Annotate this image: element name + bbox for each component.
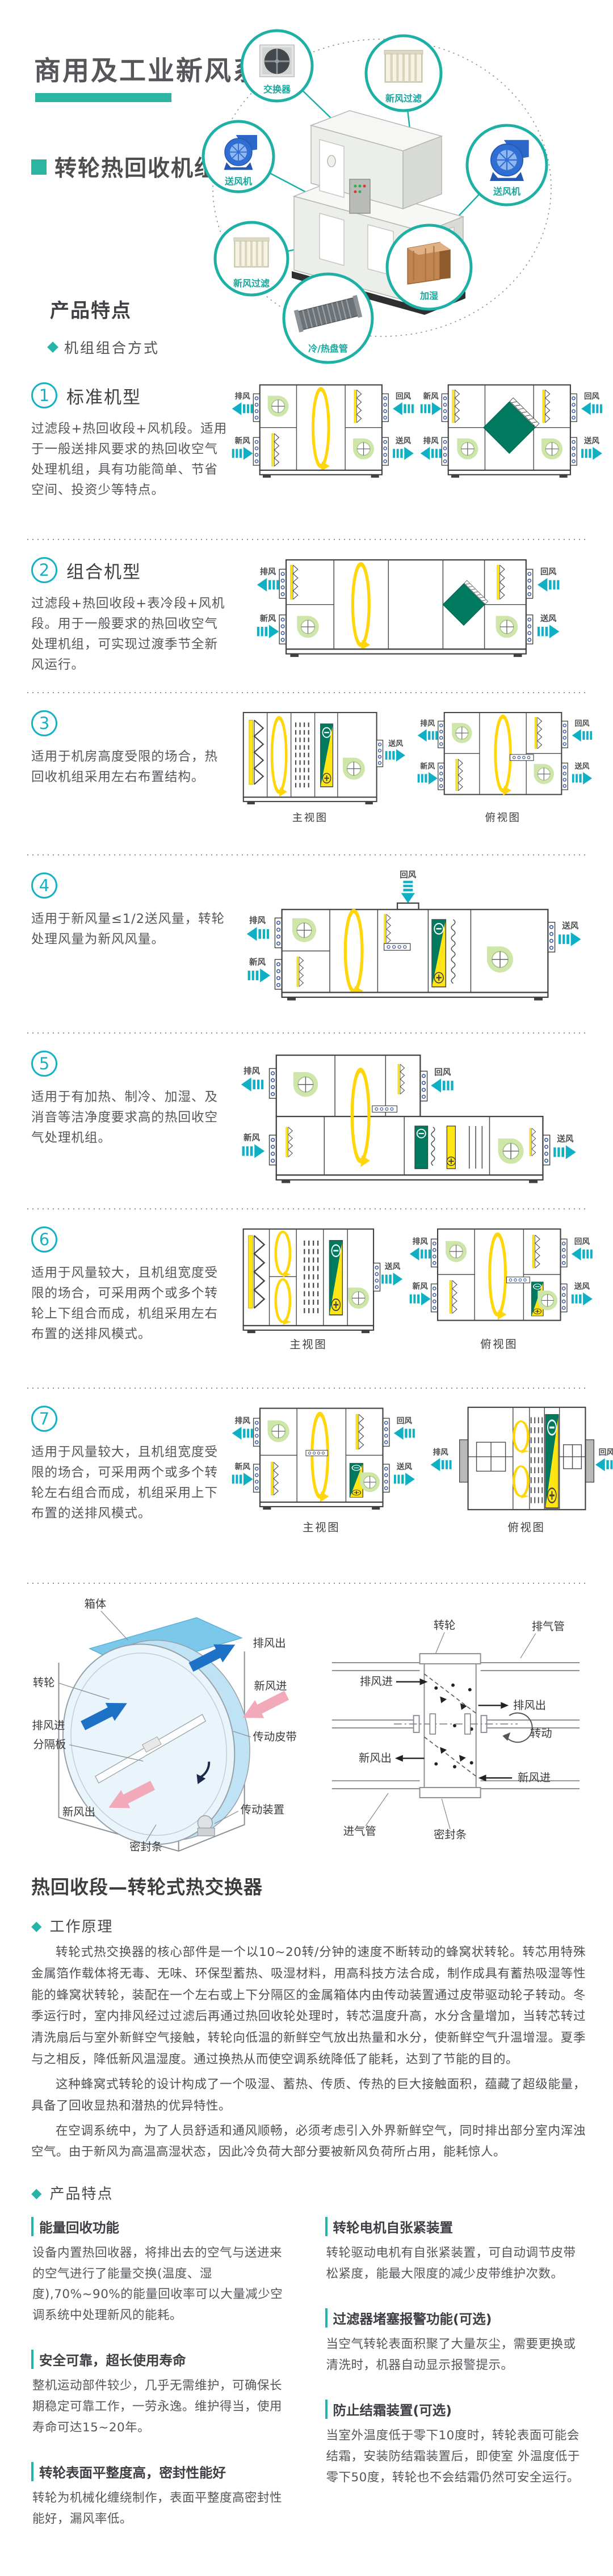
- svg-text:送风机: 送风机: [224, 176, 252, 187]
- bottom-features-section: ◆ 产品特点 能量回收功能 设备内置热回收器，将排出去的空气与送进来的空气进行了…: [0, 2166, 613, 2576]
- svg-text:新风: 新风: [412, 1281, 428, 1291]
- diamond-bullet-icon: [47, 342, 58, 353]
- schematic-top-view-twin-wheels: 排风 回风 俯视图: [421, 1402, 613, 1540]
- feature-title: 安全可靠，超长使用寿命: [31, 2350, 292, 2369]
- svg-text:排风: 排风: [259, 567, 276, 577]
- product-subtitle: 转轮热回收机组: [54, 151, 217, 183]
- callout-humidifier: 加湿: [387, 225, 471, 309]
- svg-text:排风: 排风: [423, 436, 439, 446]
- svg-text:新风: 新风: [235, 436, 251, 446]
- callout-exchanger: 交换器: [242, 31, 312, 101]
- schematic-standard-unit: 排风 新风 回风 送风: [231, 379, 417, 493]
- svg-text:新风: 新风: [259, 614, 276, 623]
- feature-title: 转轮表面平整度高，密封性能好: [31, 2462, 292, 2481]
- svg-text:新风过滤: 新风过滤: [385, 93, 422, 104]
- svg-text:新风: 新风: [235, 1462, 251, 1472]
- exploded-unit-diagram: 交换器 新风过滤 送风机 加湿 冷/热盘管 新风过滤: [198, 9, 610, 378]
- section-number: 5: [31, 1051, 57, 1077]
- svg-text:排风: 排风: [243, 1066, 261, 1076]
- svg-text:加湿: 加湿: [419, 290, 438, 301]
- schematic-front-view: 排风 新风 回风 送风 主视图: [231, 1402, 418, 1540]
- feature-section-3: 3 适用于机房高度受限的场合，热回收机组采用左右布置结构。 送风 主视图: [0, 698, 613, 850]
- section-description: 适用于新风量≤1/2送风量，转轮处理风量为新风风量。: [31, 909, 231, 950]
- svg-text:排风: 排风: [249, 916, 266, 926]
- bottom-features-title: 产品特点: [49, 2182, 113, 2203]
- features-bullet-label: 机组组合方式: [64, 337, 159, 357]
- feature-item: 转轮表面平整度高，密封性能好 转轮为机械化缠绕制作，表面平整度高密封性能好，漏风…: [31, 2462, 292, 2529]
- svg-text:新风进: 新风进: [254, 1680, 287, 1693]
- heat-recovery-section: 热回收段—转轮式热交换器 ◆ 工作原理 转轮式热交换器的核心部件是一个以10~2…: [0, 1860, 613, 2163]
- svg-text:排风出: 排风出: [253, 1637, 286, 1650]
- svg-text:回风: 回风: [540, 568, 556, 577]
- dotted-divider: [27, 1583, 586, 1584]
- callout-fresh-air-filter-top: 新风过滤: [366, 36, 441, 111]
- svg-text:新风过滤: 新风过滤: [233, 278, 270, 289]
- svg-text:进气管: 进气管: [343, 1824, 376, 1837]
- schematic-front-view-stacked-wheels: 送风 主视图: [233, 1223, 404, 1356]
- schematic-top-view: 排风 新风 回风 送风 俯视图: [417, 707, 595, 828]
- svg-text:送风: 送风: [574, 762, 589, 771]
- feature-section-6: 6 适用于风量较大，且机组宽度受限的场合，可采用两个或多个转轮上下组合而成，机组…: [0, 1214, 613, 1383]
- feature-title: 转轮电机自张紧装置: [325, 2217, 586, 2236]
- diamond-bullet-icon: ◆: [31, 1918, 43, 1934]
- svg-text:排风进: 排风进: [32, 1719, 65, 1732]
- svg-text:新风进: 新风进: [518, 1771, 551, 1784]
- schematic-combined-unit: 排风 新风 回风 送风: [256, 554, 574, 673]
- svg-text:送风: 送风: [395, 436, 412, 446]
- svg-text:回风: 回风: [574, 720, 589, 728]
- svg-text:分隔板: 分隔板: [33, 1738, 66, 1751]
- svg-text:排风: 排风: [235, 1416, 251, 1426]
- section-number: 4: [31, 872, 57, 899]
- svg-text:主视图: 主视图: [290, 1338, 328, 1351]
- feature-title: 过滤器堵塞报警功能(可选): [325, 2308, 586, 2328]
- svg-text:密封条: 密封条: [129, 1840, 162, 1853]
- schematic-front-view: 送风 主视图: [234, 707, 411, 828]
- svg-text:送风: 送风: [384, 1262, 401, 1271]
- svg-text:密封条: 密封条: [434, 1828, 467, 1841]
- svg-text:排风进: 排风进: [360, 1675, 393, 1688]
- section-description: 适用于风量较大，且机组宽度受限的场合，可采用两个或多个转轮上下组合而成，机组采用…: [31, 1263, 231, 1344]
- subtitle-bullet-square: [31, 159, 47, 175]
- svg-text:排风: 排风: [433, 1447, 449, 1457]
- svg-text:排气管: 排气管: [532, 1620, 565, 1633]
- dotted-divider: [27, 854, 586, 855]
- feature-text: 当空气转轮表面积聚了大量灰尘，需要更换或清洗时，机器自动显示报警提示。: [326, 2334, 586, 2376]
- principle-paragraph: 这种蜂窝式转轮的设计构成了一个吸湿、蓄热、传质、传热的巨大接触面积，蕴藏了超级能…: [31, 2074, 586, 2117]
- feature-item: 过滤器堵塞报警功能(可选) 当空气转轮表面积聚了大量灰尘，需要更换或清洗时，机器…: [325, 2308, 586, 2376]
- hero: 商用及工业新风系统 转轮热回收机组 产品特点 机组组合方式: [0, 0, 613, 370]
- svg-text:送风: 送风: [539, 614, 556, 623]
- recovery-heading: 热回收段—转轮式热交换器: [31, 1872, 586, 1899]
- section-description: 适用于有加热、制冷、加湿、及消音等洁净度要求高的热回收空气处理机组。: [31, 1087, 231, 1148]
- feature-text: 转轮为机械化缠绕制作，表面平整度高密封性能好，漏风率低。: [32, 2488, 292, 2529]
- wheel-cross-section-diagram: 转轮 排气管 排风进 排风出 转动 新风出 新风进 密封条 进气管: [309, 1595, 603, 1860]
- svg-text:俯视图: 俯视图: [480, 1338, 518, 1351]
- section-description: 适用于风量较大，且机组宽度受限的场合，可采用两个或多个转轮左右组合而成，机组采用…: [31, 1442, 231, 1524]
- title-underline-bar: [35, 93, 171, 102]
- svg-text:传动皮带: 传动皮带: [253, 1730, 297, 1743]
- svg-text:新风出: 新风出: [359, 1751, 392, 1764]
- callout-supply-fan-right: 送风机: [467, 125, 547, 205]
- callout-fresh-air-filter-bottom: 新风过滤: [215, 222, 288, 295]
- svg-text:交换器: 交换器: [263, 84, 291, 95]
- feature-title: 防止结霜装置(可选): [325, 2400, 586, 2419]
- dotted-divider: [27, 1388, 586, 1389]
- principle-paragraph: 转轮式热交换器的核心部件是一个以10~20转/分钟的速度不断转动的蜂窝状转轮。转…: [31, 1942, 586, 2071]
- schematic-half-flow-unit: 回风 排风 新风 送风: [245, 869, 585, 1013]
- feature-section-1: 1 标准机型 过滤段+热回收段+风机段。适用于一般送排风要求的热回收空气处理机组…: [0, 370, 613, 534]
- brochure-page: 商用及工业新风系统 转轮热回收机组 产品特点 机组组合方式: [0, 0, 613, 2576]
- section-number: 7: [31, 1406, 57, 1432]
- svg-text:新风: 新风: [249, 957, 266, 967]
- features-heading: 产品特点: [50, 295, 132, 323]
- feature-section-5: 5 适用于有加热、制冷、加湿、及消音等洁净度要求高的热回收空气处理机组。: [0, 1038, 613, 1204]
- cross-section-labels: 转轮 排气管 排风进 排风出 转动 新风出 新风进 密封条 进气管: [343, 1618, 565, 1841]
- features-column-left: 能量回收功能 设备内置热回收器，将排出去的空气与送进来的空气进行了能量交换(温度…: [31, 2217, 292, 2553]
- svg-text:回风: 回风: [397, 1416, 413, 1426]
- svg-text:回风: 回风: [584, 392, 600, 401]
- svg-text:排风: 排风: [235, 391, 251, 401]
- section-number: 6: [31, 1226, 57, 1253]
- dotted-divider: [27, 1208, 586, 1209]
- svg-text:俯视图: 俯视图: [485, 812, 520, 824]
- section-number: 1: [31, 382, 57, 408]
- svg-text:箱体: 箱体: [85, 1597, 107, 1610]
- svg-text:俯视图: 俯视图: [508, 1521, 545, 1534]
- feature-title: 能量回收功能: [31, 2217, 292, 2236]
- section-title: 组合机型: [66, 558, 141, 583]
- svg-text:回风: 回风: [574, 1237, 590, 1246]
- section-number: 2: [31, 557, 57, 583]
- svg-text:送风: 送风: [396, 1462, 413, 1472]
- svg-text:回风: 回风: [400, 870, 417, 880]
- schematic-l-shaped-unit: 排风 新风 回风 送风: [239, 1047, 591, 1191]
- schematic-unit-with-coil: 新风 排风 回风 送风: [419, 379, 606, 493]
- svg-text:转动: 转动: [530, 1727, 552, 1740]
- section-description: 过滤段+热回收段+表冷段+风机段。用于一般要求的热回收空气处理机组，可实现过渡季…: [31, 593, 231, 675]
- features-column-right: 转轮电机自张紧装置 转轮驱动电机有自张紧装置，可自动调节皮带松紧度，能最大限度的…: [325, 2217, 586, 2553]
- diamond-bullet-icon: ◆: [31, 2185, 43, 2201]
- svg-text:回风: 回风: [434, 1068, 451, 1077]
- dotted-divider: [27, 1032, 586, 1034]
- feature-item: 防止结霜装置(可选) 当室外温度低于零下10度时，转轮表面可能会结霜，安装防结霜…: [325, 2400, 586, 2488]
- svg-text:回风: 回风: [396, 392, 412, 401]
- svg-text:送风机: 送风机: [493, 186, 520, 197]
- section-title: 标准机型: [66, 383, 141, 408]
- svg-text:回风: 回风: [599, 1448, 613, 1457]
- svg-text:送风: 送风: [561, 921, 579, 931]
- svg-text:排风: 排风: [420, 719, 435, 728]
- svg-text:冷/热盘管: 冷/热盘管: [308, 343, 348, 354]
- feature-item: 转轮电机自张紧装置 转轮驱动电机有自张紧装置，可自动调节皮带松紧度，能最大限度的…: [325, 2217, 586, 2284]
- svg-text:转轮: 转轮: [33, 1676, 55, 1689]
- dotted-divider: [27, 539, 586, 540]
- svg-text:送风: 送风: [556, 1133, 574, 1144]
- section-description: 适用于机房高度受限的场合，热回收机组采用左右布置结构。: [31, 747, 231, 787]
- principle-title: 工作原理: [49, 1915, 113, 1936]
- feature-text: 当室外温度低于零下10度时，转轮表面可能会结霜，安装防结霜装置后，即使室 外温度…: [326, 2426, 586, 2488]
- svg-text:排风: 排风: [412, 1237, 428, 1246]
- feature-text: 转轮驱动电机有自张紧装置，可自动调节皮带松紧度，能最大限度的减少皮带维护次数。: [326, 2243, 586, 2284]
- svg-text:排风出: 排风出: [513, 1698, 546, 1711]
- feature-item: 能量回收功能 设备内置热回收器，将排出去的空气与送进来的空气进行了能量交换(温度…: [31, 2217, 292, 2326]
- callout-coil: 冷/热盘管: [284, 274, 372, 362]
- svg-text:主视图: 主视图: [292, 812, 328, 824]
- schematic-top-view: 排风 新风 回风 送风 俯视图: [409, 1223, 596, 1355]
- principle-paragraph: 在空调系统中，为了人员舒适和通风顺畅，必须考虑引入外界新鲜空气，同时排出部分室内…: [31, 2120, 586, 2164]
- feature-item: 安全可靠，超长使用寿命 整机运动部件较少，几乎无需维护，可确保长期稳定可靠工作，…: [31, 2350, 292, 2438]
- feature-section-2: 2 组合机型 过滤段+热回收段+表冷段+风机段。用于一般要求的热回收空气处理机组…: [0, 545, 613, 688]
- svg-text:送风: 送风: [573, 1281, 590, 1291]
- svg-text:转轮: 转轮: [434, 1618, 456, 1631]
- svg-text:新风出: 新风出: [62, 1806, 95, 1819]
- feature-text: 设备内置热回收器，将排出去的空气与送进来的空气进行了能量交换(温度、湿度),70…: [32, 2243, 292, 2326]
- svg-text:新风: 新风: [423, 391, 439, 401]
- svg-text:主视图: 主视图: [303, 1521, 340, 1534]
- section-number: 3: [31, 710, 57, 736]
- callout-supply-fan-left: 送风机: [203, 121, 274, 192]
- svg-text:新风: 新风: [420, 762, 435, 771]
- feature-section-4: 4 适用于新风量≤1/2送风量，转轮处理风量为新风风量。 回风 排风: [0, 860, 613, 1028]
- dotted-divider: [27, 692, 586, 693]
- wheel-diagrams-row: 箱体 排风出 转轮 排风进 分隔板 新风进 传动皮带 新风出 传动装置 密封条: [0, 1588, 613, 1860]
- section-description: 过滤段+热回收段+风机段。适用于一般送排风要求的热回收空气处理机组，具有功能简单…: [31, 419, 231, 500]
- svg-text:传动装置: 传动装置: [241, 1803, 284, 1816]
- feature-section-7: 7 适用于风量较大，且机组宽度受限的场合，可采用两个或多个转轮左右组合而成，机组…: [0, 1393, 613, 1578]
- svg-text:送风: 送风: [388, 739, 403, 748]
- svg-text:送风: 送风: [583, 436, 600, 446]
- svg-text:新风: 新风: [243, 1132, 261, 1142]
- wheel-isometric-diagram: 箱体 排风出 转轮 排风进 分隔板 新风进 传动皮带 新风出 传动装置 密封条: [10, 1595, 304, 1860]
- feature-text: 整机运动部件较少，几乎无需维护，可确保长期稳定可靠工作，一劳永逸。维护得当，使用…: [32, 2376, 292, 2438]
